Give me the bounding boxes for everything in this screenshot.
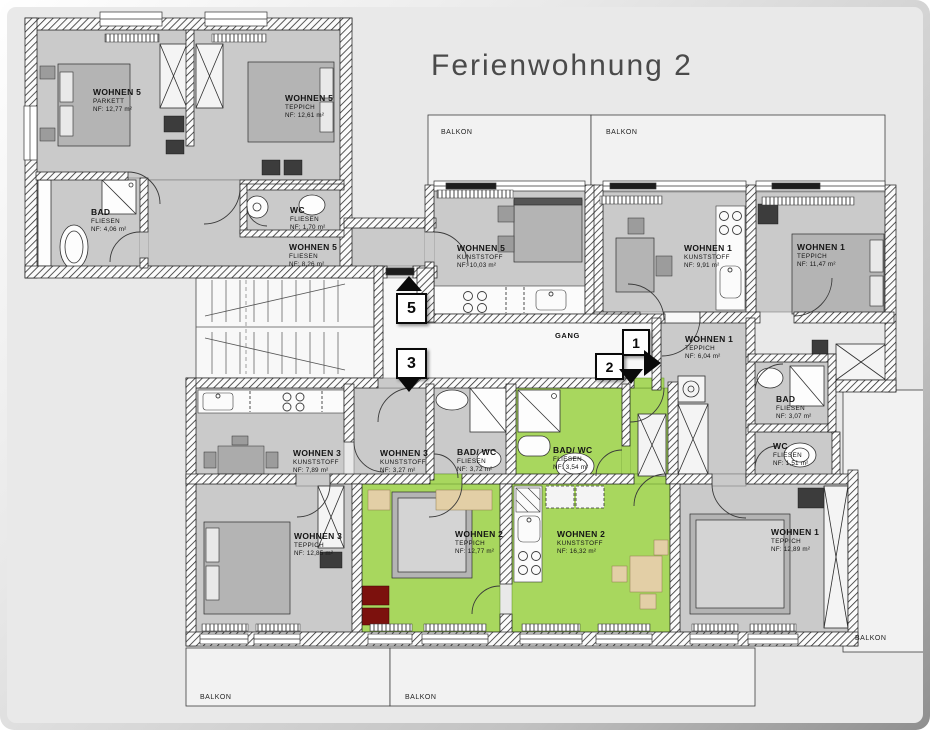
marker-apartment-5[interactable]: 5 [396, 293, 427, 324]
balcony-label-right: BALKON [855, 635, 886, 642]
balcony-label-top-right: BALKON [606, 129, 637, 136]
room-label-wc5: WC FLIESEN NF: 1,70 m² [290, 205, 325, 231]
room-name: WOHNEN 5 [93, 87, 141, 97]
room-label-wohnen1-teppich-bottom: WOHNEN 1 TEPPICH NF: 12,89 m² [771, 527, 819, 553]
floorplan-drawing [7, 7, 923, 723]
room-label-wohnen1-teppich-top: WOHNEN 1 TEPPICH NF: 11,47 m² [797, 242, 845, 268]
room-label-wohnen3-teppich: WOHNEN 3 TEPPICH NF: 12,85 m² [294, 531, 342, 557]
floorplan-canvas: Ferienwohnung 2 WOHNEN 5 PARKETT NF: 12,… [7, 7, 923, 723]
balcony-label-bottom-center: BALKON [405, 694, 436, 701]
room-area: NF: 12,77 m² [93, 106, 141, 114]
floorplan-page: Ferienwohnung 2 WOHNEN 5 PARKETT NF: 12,… [0, 0, 930, 730]
arrow-right-icon [644, 350, 661, 376]
room-label-bad1: BAD FLIESEN NF: 3,07 m² [776, 394, 811, 420]
room-label-wohnen3-hall: WOHNEN 3 KUNSTSTOFF NF: 3,27 m² [380, 448, 428, 474]
room-label-badwc3: BAD/ WC FLIESEN NF: 3,72 m² [457, 447, 496, 473]
arrow-up-icon [396, 276, 422, 291]
marker-apartment-3[interactable]: 3 [396, 348, 427, 379]
room-label-wohnen5-parkett: WOHNEN 5 PARKETT NF: 12,77 m² [93, 87, 141, 113]
room-label-wohnen2-kunststoff: WOHNEN 2 KUNSTSTOFF NF: 16,32 m² [557, 529, 605, 555]
room-label-wohnen2-teppich: WOHNEN 2 TEPPICH NF: 12,77 m² [455, 529, 503, 555]
room-label-wohnen5-kunststoff: WOHNEN 5 KUNSTSTOFF NF: 10,03 m² [457, 243, 505, 269]
balcony-label-top-left: BALKON [441, 129, 472, 136]
room-label-badwc2: BAD/ WC FLIESEN NF: 3,54 m² [553, 445, 592, 471]
page-title: Ferienwohnung 2 [431, 49, 693, 83]
room-label-wohnen5-teppich: WOHNEN 5 TEPPICH NF: 12,61 m² [285, 93, 333, 119]
room-floor: PARKETT [93, 98, 141, 106]
room-label-wohnen1-kunststoff: WOHNEN 1 KUNSTSTOFF NF: 9,91 m² [684, 243, 732, 269]
room-label-wohnen1-hall: WOHNEN 1 TEPPICH NF: 6,04 m² [685, 334, 733, 360]
corridor-label: GANG [555, 331, 580, 340]
arrow-down-icon [397, 377, 421, 392]
room-label-wohnen5-fliesen: WOHNEN 5 FLIESEN NF: 8,26 m² [289, 242, 337, 268]
room-label-bad5: BAD FLIESEN NF: 4,06 m² [91, 207, 126, 233]
room-label-wc1: WC FLIESEN NF: 1,51 m² [773, 441, 808, 467]
arrow-down-icon-2 [619, 369, 643, 384]
balcony-label-bottom-left: BALKON [200, 694, 231, 701]
room-label-wohnen3-kueche: WOHNEN 3 KUNSTSTOFF NF: 7,89 m² [293, 448, 341, 474]
